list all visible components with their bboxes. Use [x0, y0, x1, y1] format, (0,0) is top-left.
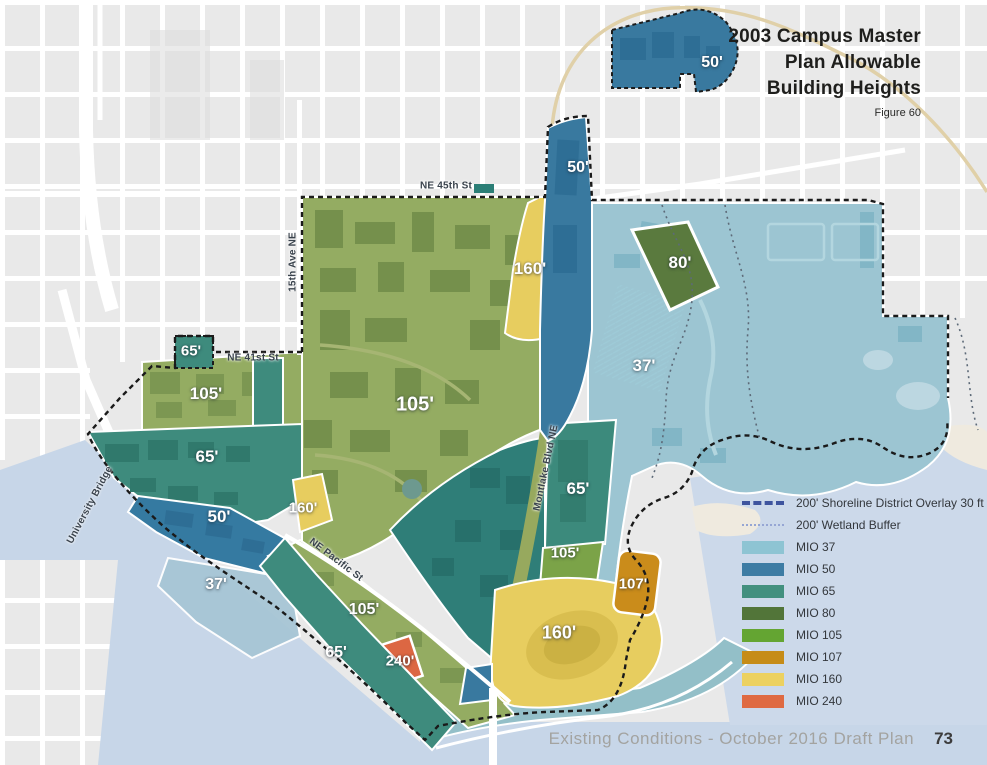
zone-mio107 [612, 550, 661, 617]
legend-mio-label: MIO 37 [796, 540, 835, 554]
figure-caption: Figure 60 [661, 107, 921, 119]
legend-mio-row: MIO 107 [742, 646, 984, 668]
legend-mio-label: MIO 240 [796, 694, 842, 708]
figure-title: 2003 Campus Master Plan Allowable Buildi… [661, 24, 921, 119]
legend-mio-label: MIO 105 [796, 628, 842, 642]
page-number: 73 [934, 729, 953, 749]
legend-color-swatch [742, 673, 784, 686]
legend-color-swatch [742, 607, 784, 620]
legend-line-sample-icon [742, 501, 784, 505]
legend-mio-label: MIO 107 [796, 650, 842, 664]
legend-color-swatch [742, 629, 784, 642]
footer-text: Existing Conditions - October 2016 Draft… [549, 729, 915, 749]
legend-line-row: 200' Wetland Buffer [742, 514, 984, 536]
legend-color-swatch [742, 563, 784, 576]
legend-mio-label: MIO 50 [796, 562, 835, 576]
title-line-2: Plan Allowable [661, 50, 921, 76]
legend-line-row: 200' Shoreline District Overlay 30 ft [742, 492, 984, 514]
legend-mio-row: MIO 37 [742, 536, 984, 558]
legend: 200' Shoreline District Overlay 30 ft 20… [742, 492, 984, 712]
legend-mio-row: MIO 50 [742, 558, 984, 580]
legend-mio-label: MIO 65 [796, 584, 835, 598]
legend-line-label: 200' Shoreline District Overlay 30 ft [796, 496, 984, 510]
legend-line-items: 200' Shoreline District Overlay 30 ft 20… [742, 492, 984, 536]
zone-marker-45th [474, 184, 494, 193]
title-line-3: Building Heights [661, 76, 921, 102]
legend-mio-row: MIO 240 [742, 690, 984, 712]
legend-mio-row: MIO 105 [742, 624, 984, 646]
legend-color-swatch [742, 695, 784, 708]
zone-mio65-small-nw [175, 336, 213, 368]
page-footer: Existing Conditions - October 2016 Draft… [549, 729, 953, 749]
legend-line-sample-icon [742, 524, 784, 526]
figure-page: 50' 50' 160' 80' 65' 105' 105' 37' 65' 1… [0, 0, 987, 765]
legend-color-swatch [742, 651, 784, 664]
legend-mio-row: MIO 65 [742, 580, 984, 602]
legend-mio-label: MIO 80 [796, 606, 835, 620]
legend-mio-label: MIO 160 [796, 672, 842, 686]
legend-mio-row: MIO 160 [742, 668, 984, 690]
legend-line-label: 200' Wetland Buffer [796, 518, 901, 532]
legend-mio-row: MIO 80 [742, 602, 984, 624]
title-line-1: 2003 Campus Master [661, 24, 921, 50]
legend-color-swatch [742, 585, 784, 598]
legend-mio-items: MIO 37 MIO 50 MIO 65 MIO 80 [742, 536, 984, 712]
legend-color-swatch [742, 541, 784, 554]
zone-mio65-midright [545, 420, 616, 548]
